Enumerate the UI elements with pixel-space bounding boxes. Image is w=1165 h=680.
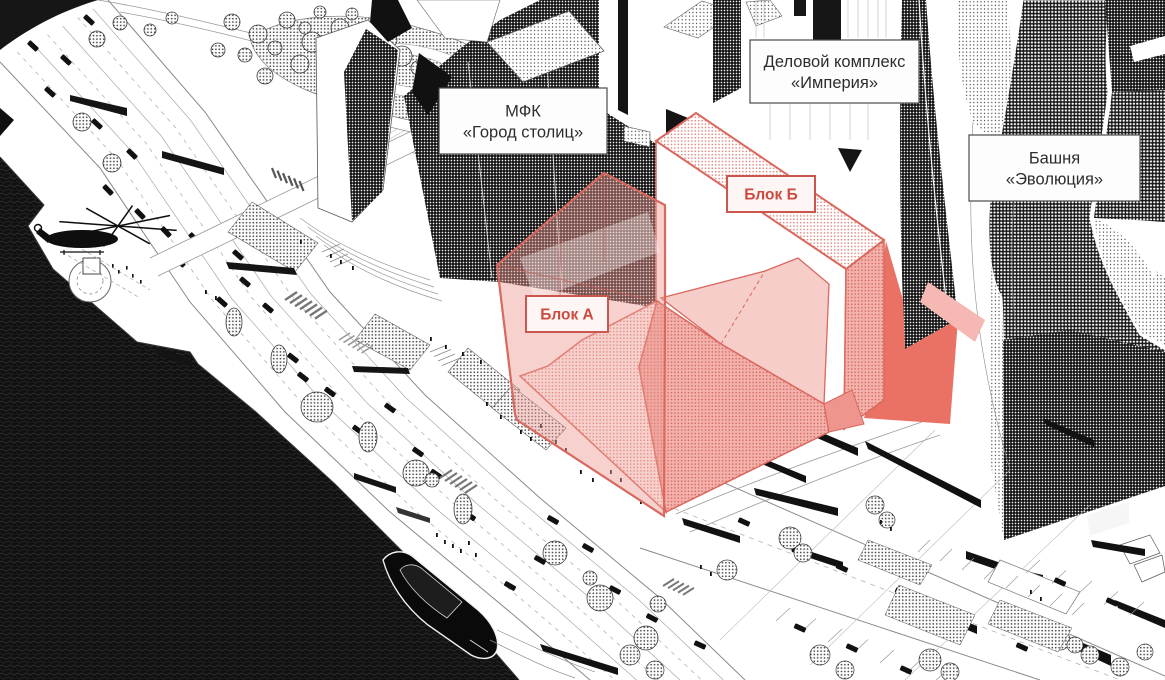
svg-text:Блок Б: Блок Б (744, 187, 797, 204)
svg-text:МФК: МФК (505, 102, 541, 120)
svg-text:«Эволюция»: «Эволюция» (1006, 170, 1103, 188)
svg-text:«Империя»: «Империя» (791, 74, 878, 92)
svg-text:Деловой комплекс: Деловой комплекс (764, 53, 906, 71)
svg-text:Блок А: Блок А (540, 307, 594, 324)
svg-text:Башня: Башня (1029, 149, 1080, 167)
svg-text:«Город столиц»: «Город столиц» (463, 123, 583, 141)
